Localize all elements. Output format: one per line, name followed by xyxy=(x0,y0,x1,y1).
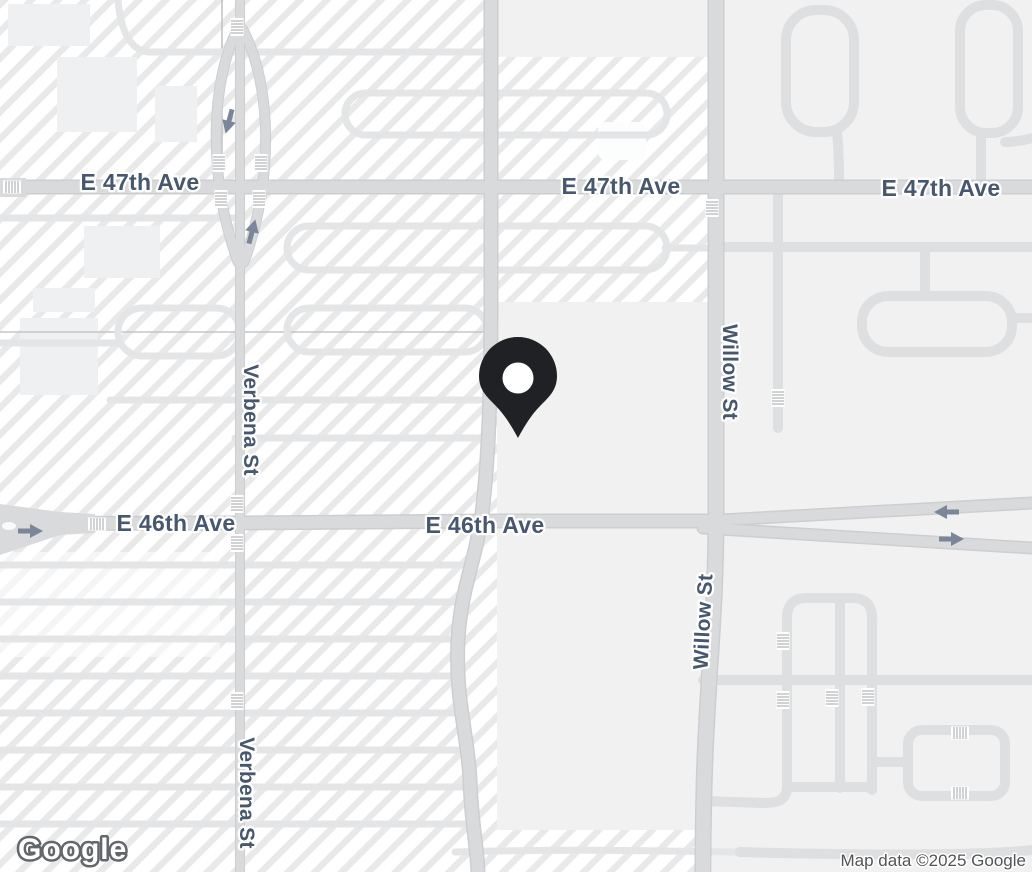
street-label-verbena-south: Verbena St xyxy=(235,737,258,849)
pin-hole xyxy=(503,363,534,394)
map-data-attribution: Map data ©2025 Google xyxy=(841,851,1027,870)
map-ground xyxy=(0,0,1032,872)
road-e46th xyxy=(0,521,712,525)
google-logo[interactable]: Google xyxy=(18,833,127,866)
street-label-e46th-west: E 46th Ave xyxy=(117,510,236,536)
street-label-e47th-east: E 47th Ave xyxy=(882,175,1001,201)
street-label-e46th-center: E 46th Ave xyxy=(426,512,545,538)
street-label-willow-north: Willow St xyxy=(718,324,741,420)
street-label-verbena-north: Verbena St xyxy=(239,364,262,476)
street-label-e47th-center: E 47th Ave xyxy=(562,173,681,199)
map-canvas[interactable]: E 47th Ave E 47th Ave E 47th Ave E 46th … xyxy=(0,0,1032,872)
street-label-e47th-west: E 47th Ave xyxy=(81,169,200,195)
